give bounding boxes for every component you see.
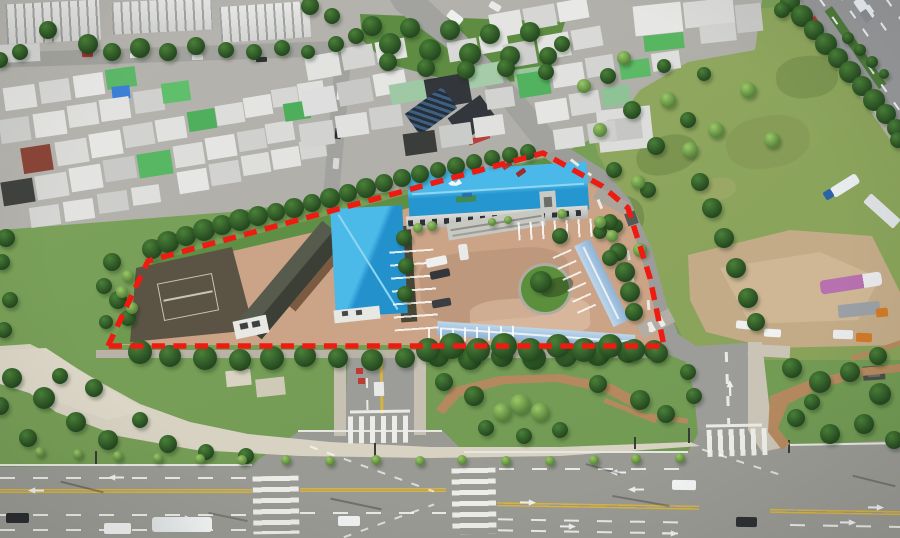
aerial-site-photo xyxy=(0,0,900,538)
photo-vignette xyxy=(0,0,900,538)
